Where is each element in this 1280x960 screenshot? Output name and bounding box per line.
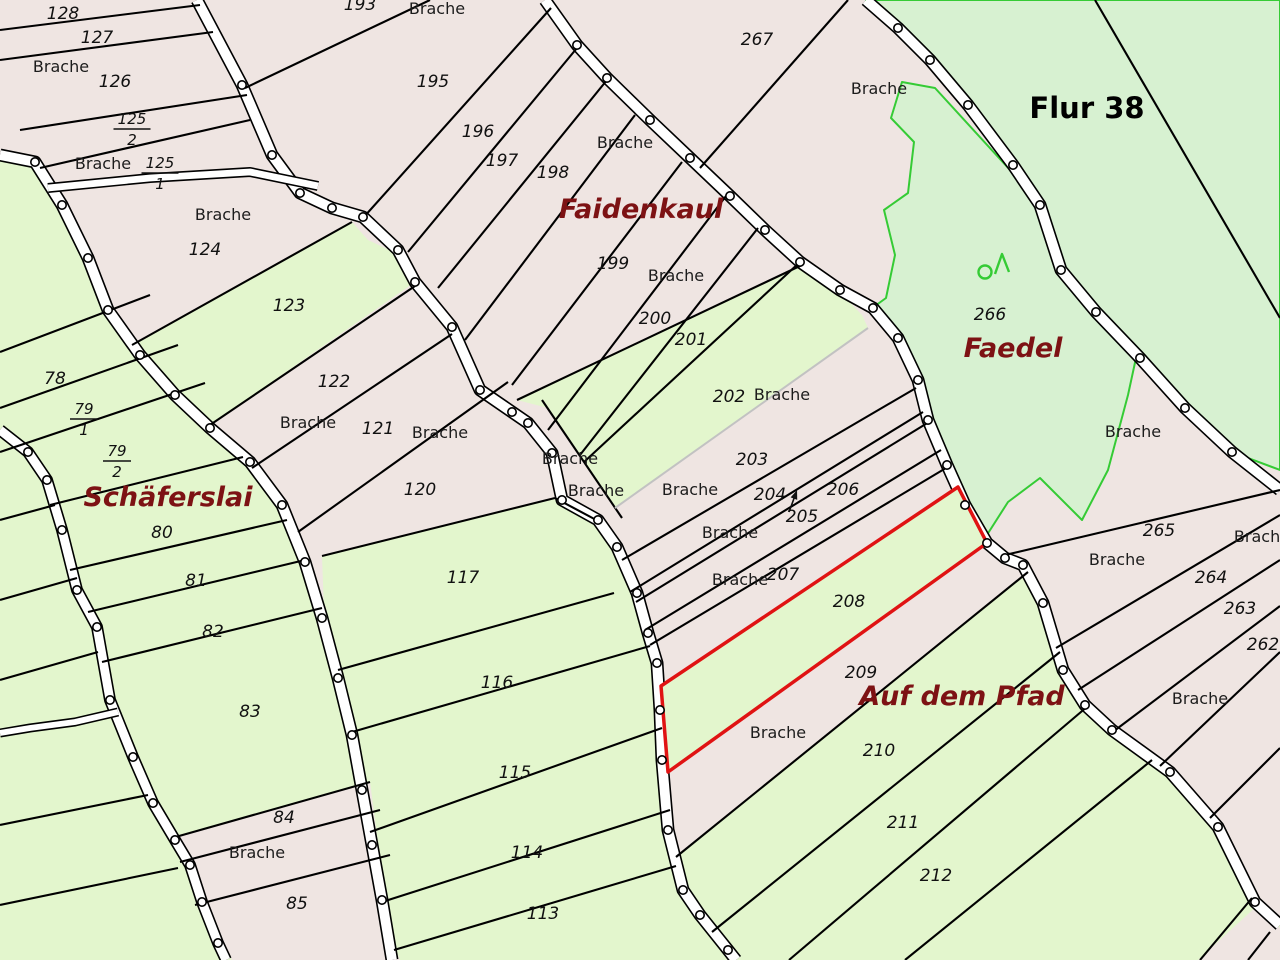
parcel-label-198: 198 [537,163,570,183]
survey-point [129,753,137,761]
survey-point [558,496,566,504]
parcel-label-195: 195 [417,72,449,92]
survey-point [24,448,32,456]
survey-point [268,151,276,159]
survey-point [696,911,704,919]
parcel-label-205: 205 [786,507,818,527]
parcel-label-122: 122 [318,372,350,392]
fraction-label-num: 79 [107,442,126,460]
parcel-label-121: 121 [362,419,394,439]
survey-point [1009,161,1017,169]
survey-point [206,424,214,432]
survey-point [679,886,687,894]
survey-point [983,539,991,547]
parcel-label-203: 203 [736,450,768,470]
survey-point [943,461,951,469]
brache-label: Brache [702,523,758,542]
area-name-sch-ferslai: Schäferslai [83,482,253,513]
parcel-label-120: 120 [404,480,436,500]
survey-point [43,476,51,484]
area-name-faedel: Faedel [964,333,1064,364]
parcel-label-113: 113 [527,904,559,924]
survey-point [1108,726,1116,734]
parcel-label-78: 78 [44,369,66,389]
survey-point [358,786,366,794]
parcel-label-212: 212 [920,866,952,886]
parcel-label-209: 209 [845,663,877,683]
survey-point [658,756,666,764]
survey-point [1166,768,1174,776]
survey-point [318,614,326,622]
survey-point [796,258,804,266]
survey-point [894,24,902,32]
survey-point [1057,266,1065,274]
survey-point [1036,201,1044,209]
brache-label: Brache [597,133,653,152]
survey-point [644,629,652,637]
brache-label: Brache [1089,550,1145,569]
survey-point [328,204,336,212]
survey-point [761,226,769,234]
survey-point [198,898,206,906]
brache-label: Brache [648,266,704,285]
brache-label: Brache [851,79,907,98]
survey-point [1092,308,1100,316]
brache-label: Brache [712,570,768,589]
parcel-label-202: 202 [713,387,745,407]
survey-point [894,334,902,342]
parcel-label-114: 114 [511,843,543,863]
survey-point [726,192,734,200]
brache-label: Brache [568,481,624,500]
parcel-label-83: 83 [239,702,261,722]
parcel-label-262: 262 [1247,635,1279,655]
parcel-label-201: 201 [675,330,707,350]
brache-label: Brache [1105,422,1161,441]
brache-label: Brache [195,205,251,224]
survey-point [524,419,532,427]
survey-point [924,416,932,424]
parcel-label-263: 263 [1224,599,1256,619]
parcel-label-193: 193 [344,0,376,15]
area-name-auf-dem-pfad: Auf dem Pfad [857,681,1065,712]
area-name-faidenkaul: Faidenkaul [559,194,724,225]
parcel-label-265: 265 [1143,521,1175,541]
fraction-label-den: 2 [112,463,122,481]
survey-point [149,799,157,807]
parcel-label-124: 124 [189,240,221,260]
survey-point [93,623,101,631]
parcel-label-266: 266 [974,305,1007,325]
parcel-label-206: 206 [827,480,860,500]
survey-point [171,836,179,844]
brache-label: Brache [542,449,598,468]
parcel-label-196: 196 [462,122,495,142]
brache-label: Brache [1234,527,1280,546]
brache-label: Brache [33,57,89,76]
survey-point [186,861,194,869]
brache-label: Brache [229,843,285,862]
survey-point [1251,898,1259,906]
survey-point [613,543,621,551]
brache-label: Brache [750,723,806,742]
survey-point [476,386,484,394]
survey-point [1001,554,1009,562]
brache-label: Brache [662,480,718,499]
survey-point [1214,823,1222,831]
survey-point [724,946,732,954]
survey-point [278,501,286,509]
survey-point [594,516,602,524]
survey-point [448,323,456,331]
survey-point [214,939,222,947]
survey-point [1081,701,1089,709]
survey-point [84,254,92,262]
survey-point [296,189,304,197]
survey-point [653,659,661,667]
survey-point [1039,599,1047,607]
survey-point [656,706,664,714]
parcel-label-127: 127 [81,28,114,48]
survey-point [646,116,654,124]
brache-label: Brache [754,385,810,404]
survey-point [961,501,969,509]
survey-point [58,526,66,534]
survey-point [633,589,641,597]
survey-point [664,826,672,834]
parcel-label-117: 117 [447,568,480,588]
survey-point [136,351,144,359]
survey-point [1059,666,1067,674]
survey-point [104,306,112,314]
parcel-label-81: 81 [185,571,207,591]
fraction-label-num: 125 [118,110,147,128]
parcel-label-116: 116 [481,673,514,693]
parcel-label-210: 210 [863,741,895,761]
survey-point [869,304,877,312]
brache-label: Brache [280,413,336,432]
parcel-label-199: 199 [597,254,629,274]
survey-point [31,158,39,166]
fraction-label-den: 2 [127,131,137,149]
brache-label: Brache [412,423,468,442]
survey-point [73,586,81,594]
parcel-label-207: 207 [767,565,800,585]
parcel-label-264: 264 [1195,568,1227,588]
cadastral-map-stage[interactable]: 1281271261241231221211201171161151141137… [0,0,1280,960]
survey-point [1019,561,1027,569]
survey-point [926,56,934,64]
survey-point [171,391,179,399]
survey-point [106,696,114,704]
parcel-label-80: 80 [151,523,173,543]
parcel-label-208: 208 [833,592,866,612]
parcel-label-267: 267 [741,30,774,50]
survey-point [301,558,309,566]
parcel-label-197: 197 [486,151,519,171]
survey-point [836,286,844,294]
survey-point [686,154,694,162]
parcel-label-123: 123 [273,296,305,316]
brache-label: Brache [75,154,131,173]
fraction-label-den: 1 [79,421,89,439]
fraction-label-num: 79 [74,400,93,418]
survey-point [348,731,356,739]
brache-label: Brache [1172,689,1228,708]
parcel-label-204: 204 [754,485,786,505]
flur-38-label: Flur 38 [1029,91,1144,125]
survey-point [573,41,581,49]
survey-point [58,201,66,209]
survey-point [603,74,611,82]
survey-point [359,213,367,221]
fraction-label-num: 125 [146,154,175,172]
parcel-label-128: 128 [47,4,80,24]
survey-point [238,81,246,89]
survey-point [1228,448,1236,456]
survey-point [411,278,419,286]
survey-point [334,674,342,682]
survey-point [394,246,402,254]
parcel-label-115: 115 [499,763,531,783]
survey-point [508,408,516,416]
parcel-label-85: 85 [286,894,308,914]
survey-point [1136,354,1144,362]
parcel-label-84: 84 [273,808,295,828]
survey-point [246,458,254,466]
parcel-label-126: 126 [99,72,132,92]
survey-point [914,376,922,384]
fraction-label-den: 1 [155,175,165,193]
parcel-label-82: 82 [202,622,224,642]
cadastral-map[interactable]: 1281271261241231221211201171161151141137… [0,0,1280,960]
survey-point [964,101,972,109]
survey-point [378,896,386,904]
brache-label: Brache [409,0,465,18]
survey-point [1181,404,1189,412]
survey-point [368,841,376,849]
parcel-label-211: 211 [887,813,919,833]
parcel-label-200: 200 [639,309,671,329]
